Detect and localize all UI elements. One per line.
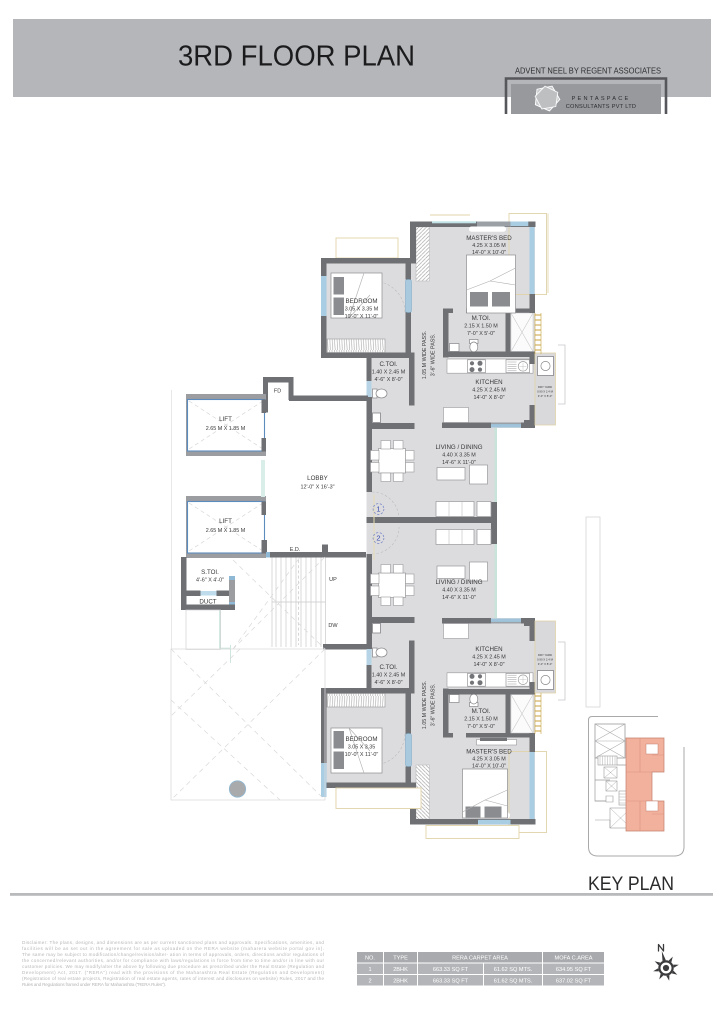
- svg-text:CONSULTANTS PVT LTD: CONSULTANTS PVT LTD: [566, 104, 637, 110]
- svg-text:7'-0" X 5'-0": 7'-0" X 5'-0": [467, 724, 495, 730]
- svg-text:2.65 M X 1.85 M: 2.65 M X 1.85 M: [206, 426, 246, 432]
- svg-text:10'-0" X 11'-0": 10'-0" X 11'-0": [345, 752, 379, 758]
- svg-text:NO.: NO.: [365, 956, 375, 962]
- svg-text:3'-6" WIDE PASS.: 3'-6" WIDE PASS.: [431, 684, 437, 727]
- svg-text:LIFT: LIFT: [219, 416, 232, 423]
- svg-text:DUCT: DUCT: [199, 599, 216, 606]
- svg-text:MASTER'S BED: MASTER'S BED: [466, 749, 512, 756]
- svg-text:61.62 SQ MTS.: 61.62 SQ MTS.: [494, 967, 533, 973]
- svg-text:PENTASPACE: PENTASPACE: [572, 96, 631, 102]
- svg-text:the concerned/relevant authori: the concerned/relevant authorities, and/…: [22, 958, 324, 963]
- svg-text:663.33 SQ FT: 663.33 SQ FT: [433, 967, 469, 973]
- svg-text:Disclaimer: The plans, designs: Disclaimer: The plans, designs, and dime…: [22, 940, 324, 945]
- svg-text:BEDROOM: BEDROOM: [346, 298, 378, 305]
- svg-text:M.TOI.: M.TOI.: [472, 708, 491, 715]
- svg-text:2.65 M X 1.85 M: 2.65 M X 1.85 M: [206, 528, 246, 534]
- svg-text:4'-6" X 8'-0": 4'-6" X 8'-0": [374, 377, 402, 383]
- svg-text:14'-6" X 11'-0": 14'-6" X 11'-0": [442, 460, 476, 466]
- svg-text:E.D.: E.D.: [290, 547, 300, 553]
- svg-text:BEDROOM: BEDROOM: [346, 736, 378, 743]
- svg-text:1: 1: [376, 505, 380, 514]
- svg-text:634.95 SQ FT: 634.95 SQ FT: [556, 967, 592, 973]
- svg-text:Rules and Regulations framed u: Rules and Regulations framed under RERA …: [22, 982, 166, 987]
- svg-text:1.05 M WIDE PASS.: 1.05 M WIDE PASS.: [422, 681, 428, 729]
- svg-text:12'-0" X 16'-3": 12'-0" X 16'-3": [300, 485, 334, 491]
- svg-text:14'-0" X 8'-0": 14'-0" X 8'-0": [473, 662, 504, 668]
- svg-text:14'-6" X 11'-0": 14'-6" X 11'-0": [442, 595, 476, 601]
- svg-text:14'-0" X 10'-0": 14'-0" X 10'-0": [472, 764, 506, 770]
- svg-text:2.15 X 1.50 M: 2.15 X 1.50 M: [464, 324, 498, 330]
- svg-text:(Registration of real estate p: (Registration of real estate projects, R…: [22, 976, 324, 981]
- svg-text:7'-0" X 5'-0": 7'-0" X 5'-0": [467, 331, 495, 337]
- svg-text:1.05 M WIDE PASS.: 1.05 M WIDE PASS.: [422, 331, 428, 379]
- svg-text:61.62 SQ MTS.: 61.62 SQ MTS.: [494, 979, 533, 985]
- svg-text:MASTER'S BED: MASTER'S BED: [466, 235, 512, 242]
- svg-text:3'-6" WIDE PASS.: 3'-6" WIDE PASS.: [431, 334, 437, 377]
- svg-text:C.TOI.: C.TOI.: [379, 664, 397, 671]
- svg-text:S.TOI.: S.TOI.: [201, 569, 219, 576]
- svg-text:KITCHEN: KITCHEN: [475, 379, 502, 386]
- svg-text:LOBBY: LOBBY: [307, 475, 328, 482]
- svg-text:637.02 SQ FT: 637.02 SQ FT: [556, 979, 592, 985]
- svg-text:M.TOI.: M.TOI.: [472, 315, 491, 322]
- svg-text:MOFA C.AREA: MOFA C.AREA: [555, 956, 593, 962]
- svg-text:3.05 X 3.35 M: 3.05 X 3.35 M: [345, 307, 379, 313]
- svg-text:3'-0" X 8'-0": 3'-0" X 8'-0": [538, 394, 553, 398]
- svg-text:2.15 X 1.50 M: 2.15 X 1.50 M: [464, 717, 498, 723]
- svg-text:14'-0" X 8'-0": 14'-0" X 8'-0": [473, 395, 504, 401]
- svg-text:2: 2: [376, 534, 380, 543]
- svg-text:FD: FD: [274, 389, 281, 395]
- svg-text:4.25 X 2.45 M: 4.25 X 2.45 M: [472, 655, 506, 661]
- svg-text:4.40 X 3.35 M: 4.40 X 3.35 M: [442, 588, 476, 594]
- svg-text:Development) Act, 2017. ("RER: Development) Act, 2017. ("RERA") read wi…: [22, 970, 324, 975]
- svg-text:LIVING / DINING: LIVING / DINING: [435, 444, 482, 451]
- svg-text:4'-6" X 4'-0": 4'-6" X 4'-0": [196, 578, 224, 584]
- svg-text:4.25 X 2.45 M: 4.25 X 2.45 M: [472, 388, 506, 394]
- svg-text:KEY PLAN: KEY PLAN: [588, 873, 674, 895]
- svg-text:The same may be subject to mod: The same may be subject to modification/…: [22, 952, 325, 957]
- svg-text:1.40 X 2.45 M: 1.40 X 2.45 M: [372, 673, 406, 679]
- svg-text:2: 2: [368, 979, 371, 985]
- svg-text:LIFT: LIFT: [219, 518, 232, 525]
- svg-text:4.25 X 3.05 M: 4.25 X 3.05 M: [472, 757, 506, 763]
- svg-text:ADVENT NEEL BY REGENT ASSOCIAT: ADVENT NEEL BY REGENT ASSOCIATES: [515, 67, 661, 76]
- svg-text:2BHK: 2BHK: [393, 979, 408, 985]
- svg-text:RERA CARPET AREA: RERA CARPET AREA: [452, 956, 508, 962]
- svg-text:DRY YARD: DRY YARD: [538, 653, 552, 657]
- svg-text:3'-0" X 8'-0": 3'-0" X 8'-0": [538, 662, 553, 666]
- svg-text:customer policies. We may modi: customer policies. We may modify/alter t…: [22, 964, 324, 969]
- svg-text:10'-0" X 11'-0": 10'-0" X 11'-0": [345, 314, 379, 320]
- svg-text:4.40 X 3.35 M: 4.40 X 3.35 M: [442, 453, 476, 459]
- svg-text:3RD FLOOR PLAN: 3RD FLOOR PLAN: [178, 41, 415, 73]
- svg-text:1.40 X 2.45 M: 1.40 X 2.45 M: [372, 370, 406, 376]
- svg-text:3.05 X 3.35: 3.05 X 3.35: [348, 745, 376, 751]
- svg-text:14'-0" X 10'-0": 14'-0" X 10'-0": [472, 250, 506, 256]
- svg-text:0.90 X 2.4 M: 0.90 X 2.4 M: [537, 390, 554, 394]
- svg-text:C.TOI.: C.TOI.: [379, 361, 397, 368]
- svg-text:2BHK: 2BHK: [393, 967, 408, 973]
- svg-text:facilities will be as set out: facilities will be as set out in the agr…: [22, 946, 324, 951]
- svg-text:TYPE: TYPE: [393, 956, 408, 962]
- svg-text:KITCHEN: KITCHEN: [475, 646, 502, 653]
- svg-text:4'-6" X 8'-0": 4'-6" X 8'-0": [374, 680, 402, 686]
- svg-text:0.90 X 2.4 M: 0.90 X 2.4 M: [537, 658, 554, 662]
- svg-text:UP: UP: [329, 577, 337, 583]
- svg-text:DRY YARD: DRY YARD: [538, 385, 552, 389]
- svg-text:LIVING / DINING: LIVING / DINING: [435, 579, 482, 586]
- svg-text:663.33 SQ FT: 663.33 SQ FT: [433, 979, 469, 985]
- svg-text:1: 1: [368, 967, 371, 973]
- svg-text:DW: DW: [328, 623, 338, 629]
- svg-text:4.25 X 3.05 M: 4.25 X 3.05 M: [472, 243, 506, 249]
